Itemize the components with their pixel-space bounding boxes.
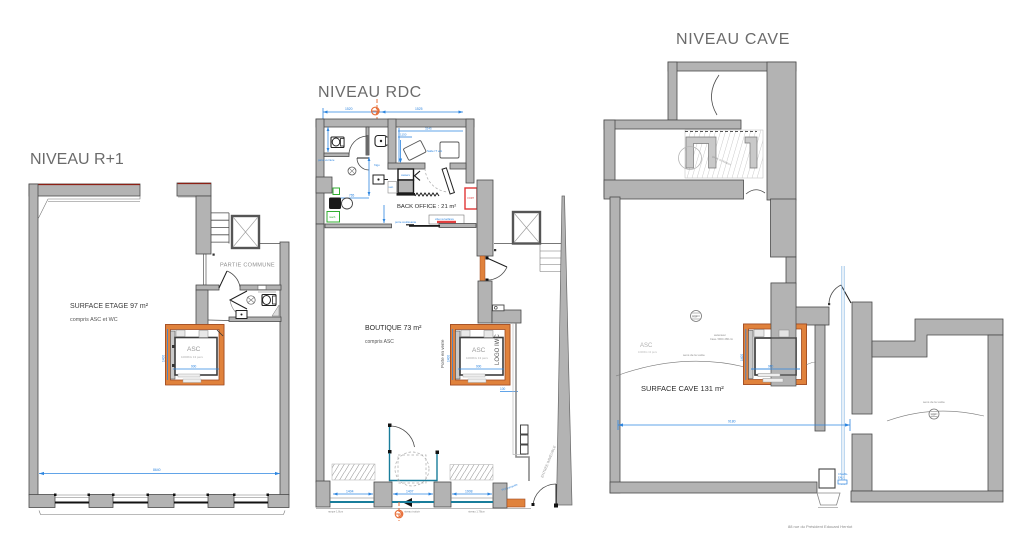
svg-text:compris ASC: compris ASC — [365, 339, 394, 345]
svg-text:niveau 1.78cm: niveau 1.78cm — [468, 510, 485, 514]
svg-text:rampe 1.8cm: rampe 1.8cm — [328, 510, 343, 514]
svg-text:NIVEAU R+1: NIVEAU R+1 — [30, 151, 124, 168]
svg-text:LOGO IWC: LOGO IWC — [495, 334, 501, 365]
svg-text:900: 900 — [476, 365, 482, 369]
svg-text:765: 765 — [349, 194, 355, 198]
svg-text:1908: 1908 — [465, 490, 473, 494]
svg-text:9180: 9180 — [728, 420, 736, 424]
svg-text:Chauffe-: Chauffe- — [838, 472, 848, 476]
svg-text:FORT: FORT — [468, 197, 475, 200]
svg-text:HSP: HSP — [931, 414, 936, 417]
svg-text:sens de la voûte: sens de la voûte — [923, 400, 945, 404]
svg-text:3245: 3245 — [425, 127, 432, 131]
svg-text:paroi verriere: paroi verriere — [318, 158, 335, 162]
svg-text:1400: 1400 — [447, 355, 451, 362]
svg-text:Cave / RDC 280 cm: Cave / RDC 280 cm — [710, 337, 733, 341]
svg-text:ENTREE IMMEUBLE: ENTREE IMMEUBLE — [540, 444, 557, 478]
svg-text:1150: 1150 — [400, 133, 407, 137]
svg-text:1400: 1400 — [740, 354, 744, 361]
svg-text:1000KG 13 pers: 1000KG 13 pers — [466, 356, 488, 360]
svg-text:ASC: ASC — [640, 343, 653, 349]
svg-text:1404: 1404 — [346, 490, 354, 494]
svg-text:vest.: vest. — [389, 186, 394, 189]
svg-text:1407: 1407 — [406, 490, 414, 494]
svg-text:ASC: ASC — [472, 347, 486, 354]
svg-text:BOUTIQUE 73 m²: BOUTIQUE 73 m² — [365, 325, 422, 332]
svg-text:1000KG 13 pers: 1000KG 13 pers — [638, 350, 658, 354]
svg-text:Porte en verre: Porte en verre — [440, 339, 445, 368]
svg-text:EAU: EAU — [838, 476, 843, 480]
svg-text:sens de la voûte: sens de la voûte — [683, 353, 705, 357]
svg-text:88 rue du Président Edouard He: 88 rue du Président Edouard Herriot — [788, 524, 853, 529]
svg-text:casiers: casiers — [401, 173, 410, 177]
svg-text:NIVEAU CAVE: NIVEAU CAVE — [676, 31, 790, 48]
svg-text:SURFACE CAVE 131 m²: SURFACE CAVE 131 m² — [641, 384, 724, 393]
svg-text:ascenseur: ascenseur — [714, 333, 726, 337]
svg-text:1520: 1520 — [345, 107, 353, 111]
svg-text:900: 900 — [191, 365, 197, 369]
svg-text:mach: mach — [329, 215, 336, 219]
svg-text:PARTIE COMMUNE: PARTIE COMMUNE — [220, 263, 275, 269]
svg-text:Salle IT ent: Salle IT ent — [427, 149, 442, 153]
svg-text:HSP: HSP — [693, 316, 698, 319]
svg-text:video surveillance: video surveillance — [435, 218, 455, 221]
svg-text:niveau trottoir: niveau trottoir — [404, 510, 420, 514]
svg-text:8640: 8640 — [153, 468, 161, 472]
svg-text:1400: 1400 — [162, 355, 166, 362]
svg-text:BACK OFFICE : 21 m²: BACK OFFICE : 21 m² — [397, 204, 456, 210]
svg-text:porte coulissante: porte coulissante — [395, 220, 417, 224]
svg-text:900: 900 — [768, 365, 774, 369]
svg-text:SURFACE ETAGE 97 m²: SURFACE ETAGE 97 m² — [70, 303, 149, 310]
svg-text:100: 100 — [500, 387, 506, 391]
svg-text:frigo: frigo — [374, 163, 380, 167]
svg-text:1525: 1525 — [415, 107, 423, 111]
svg-text:ASC: ASC — [187, 346, 201, 353]
svg-text:NIVEAU RDC: NIVEAU RDC — [318, 84, 422, 101]
svg-text:compris ASC et WC: compris ASC et WC — [70, 317, 118, 323]
svg-text:1000KG 13 pers: 1000KG 13 pers — [181, 355, 203, 359]
